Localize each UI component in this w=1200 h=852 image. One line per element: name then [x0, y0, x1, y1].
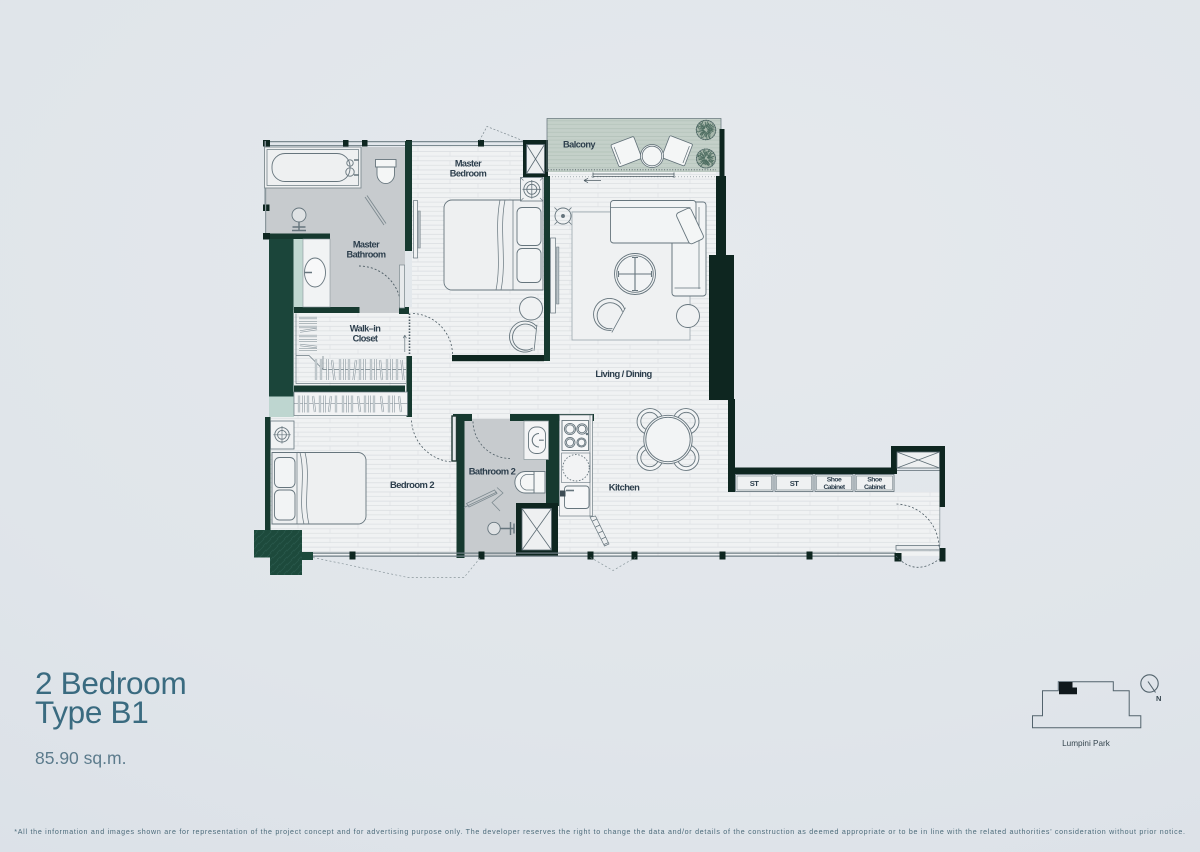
svg-text:Type B1: Type B1: [35, 694, 148, 730]
svg-text:Shoe: Shoe: [867, 477, 882, 484]
svg-text:Cabinet: Cabinet: [823, 484, 845, 491]
svg-text:Walk–in: Walk–in: [350, 324, 381, 334]
svg-text:Shoe: Shoe: [827, 477, 842, 484]
svg-text:Closet: Closet: [353, 334, 378, 344]
svg-text:Living / Dining: Living / Dining: [595, 368, 652, 379]
svg-text:Bedroom: Bedroom: [450, 169, 487, 179]
svg-text:Balcony: Balcony: [563, 140, 596, 150]
svg-text:N: N: [1156, 694, 1161, 703]
svg-text:Bedroom 2: Bedroom 2: [390, 479, 434, 490]
svg-text:Master: Master: [353, 240, 380, 250]
svg-text:ST: ST: [790, 479, 800, 488]
svg-text:ST: ST: [750, 479, 760, 488]
svg-text:Cabinet: Cabinet: [864, 484, 886, 491]
svg-text:Lumpini Park: Lumpini Park: [1062, 739, 1111, 748]
svg-text:Bathroom 2: Bathroom 2: [469, 466, 516, 477]
svg-text:*All the information and image: *All the information and images shown ar…: [14, 828, 1186, 836]
svg-text:Bathroom: Bathroom: [347, 250, 386, 260]
svg-text:Kitchen: Kitchen: [609, 482, 640, 493]
svg-text:Master: Master: [455, 159, 482, 169]
svg-text:85.90 sq.m.: 85.90 sq.m.: [35, 748, 126, 768]
